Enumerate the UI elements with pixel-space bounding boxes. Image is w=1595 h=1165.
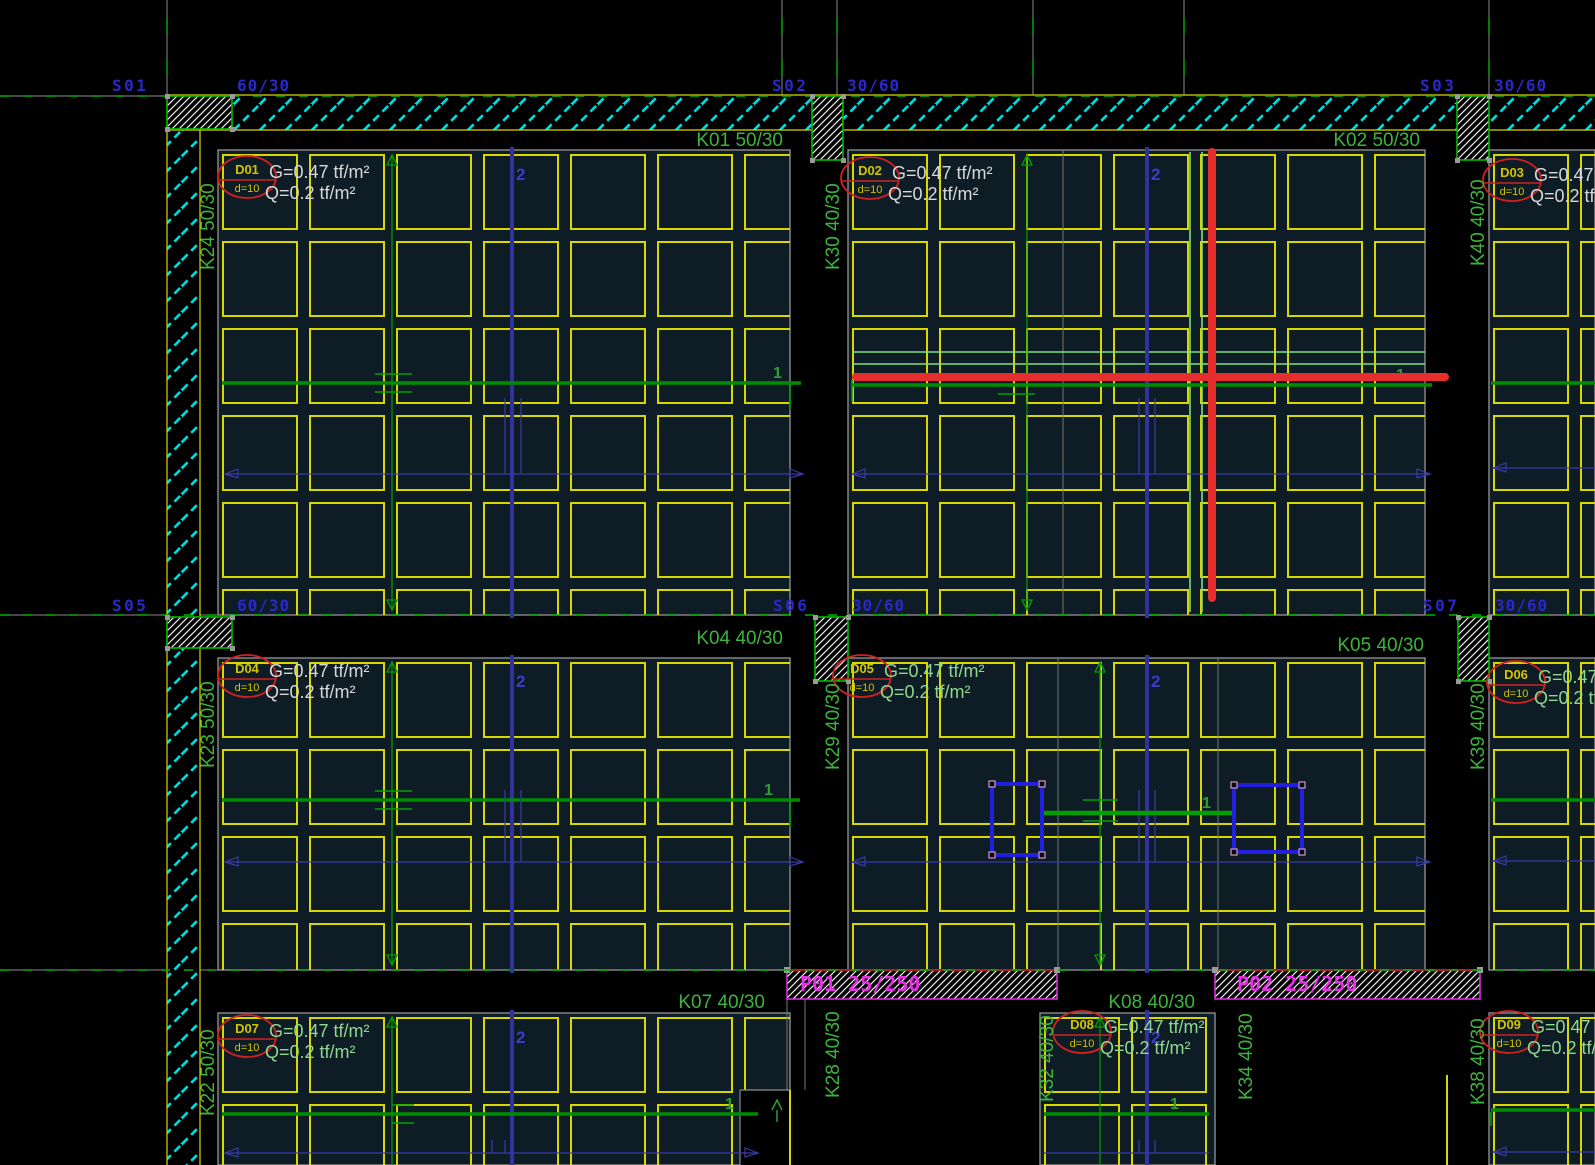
beam-label-K30[interactable]: K30 40/30 (823, 183, 844, 270)
slab-id-label: D09 (1497, 1017, 1521, 1032)
beam-label-K22[interactable]: K22 50/30 (198, 1029, 219, 1116)
slab-thickness-label: d=10 (1504, 688, 1529, 700)
slab-dead-load: G=0.47 tf/m² (1534, 165, 1595, 185)
slab-dead-load: G=0.47 tf/m² (1104, 1017, 1205, 1037)
slab-live-load: Q=0.2 tf/m² (888, 184, 979, 204)
slab-live-load: Q=0.2 tf/m² (1530, 186, 1595, 206)
shear-wall-label: P01 25/250 (800, 972, 920, 996)
column-corner-grip (1455, 158, 1460, 163)
slab-live-load: Q=0.2 tf/m² (1527, 1038, 1595, 1058)
slab-thickness-label: d=10 (1497, 1038, 1522, 1050)
column-corner-grip (813, 615, 818, 620)
slab-dead-load: G=0.47 tf/m² (1531, 1017, 1595, 1037)
selection-grip[interactable] (1231, 849, 1237, 855)
strip-label-1: 1 (773, 365, 782, 382)
column-size-label[interactable]: 30/60 (1494, 76, 1547, 95)
column-corner-grip (165, 615, 170, 620)
slab-live-load: Q=0.2 tf/m² (265, 1042, 356, 1062)
slab-live-load: Q=0.2 tf/m² (880, 682, 971, 702)
beam-label-K29[interactable]: K29 40/30 (823, 683, 844, 770)
column-name-label[interactable]: S07 (1423, 596, 1459, 615)
column-corner-grip (165, 94, 170, 99)
slab-dead-load: G=0.47 tf/m² (1538, 667, 1595, 687)
slab-dead-load: G=0.47 tf/m² (269, 1021, 370, 1041)
column-corner-grip (165, 646, 170, 651)
column-size-label[interactable]: 30/60 (852, 596, 905, 615)
slab-id-label: D05 (850, 661, 874, 676)
column-size-label[interactable]: 60/30 (237, 596, 290, 615)
column-corner-grip (810, 94, 815, 99)
slab-notch (740, 1090, 790, 1165)
column-corner-grip (1456, 615, 1461, 620)
cad-canvas: P01 25/250P02 25/250S0160/30S0230/60S033… (0, 0, 1595, 1165)
column-size-label[interactable]: 30/60 (847, 76, 900, 95)
slab-id-label: D06 (1504, 667, 1528, 682)
column-corner-grip (813, 679, 818, 684)
slab-dead-load: G=0.47 tf/m² (269, 661, 370, 681)
strip-label-2: 2 (1151, 165, 1160, 184)
column-name-label[interactable]: S01 (112, 76, 148, 95)
column-corner-grip (230, 646, 235, 651)
column-size-label[interactable]: 30/60 (1495, 596, 1548, 615)
selection-grip[interactable] (1231, 782, 1237, 788)
slab-id-label: D02 (858, 163, 882, 178)
beam-label-K28[interactable]: K28 40/30 (823, 1011, 844, 1098)
slab-id-label: D01 (235, 162, 259, 177)
slab-thickness-label: d=10 (1070, 1038, 1095, 1050)
beam-label-K05[interactable]: K05 40/30 (1337, 635, 1424, 656)
beam-label-K38[interactable]: K38 40/30 (1468, 1018, 1489, 1105)
slab-thickness-label: d=10 (858, 184, 883, 196)
beam-label-K32[interactable]: K32 40/30 (1037, 1015, 1058, 1102)
slab-thickness-label: d=10 (850, 682, 875, 694)
slab-live-load: Q=0.2 tf/m² (1100, 1038, 1191, 1058)
selection-grip[interactable] (1299, 782, 1305, 788)
slab-thickness-label: d=10 (235, 1042, 260, 1054)
column-corner-grip (230, 94, 235, 99)
selection-grip[interactable] (1299, 849, 1305, 855)
column-name-label[interactable]: S05 (112, 596, 148, 615)
column-corner-grip (230, 615, 235, 620)
beam-label-K08[interactable]: K08 40/30 (1108, 992, 1195, 1013)
beam-label-K04[interactable]: K04 40/30 (696, 628, 783, 649)
shear-wall-label: P02 25/250 (1237, 972, 1357, 996)
strip-label-2: 2 (1151, 672, 1160, 691)
strip-label-2: 2 (516, 165, 525, 184)
column-corner-grip (841, 158, 846, 163)
beam-label-K40[interactable]: K40 40/30 (1468, 179, 1489, 266)
shear-wall-2[interactable]: P02 25/250 (1212, 967, 1483, 999)
slab-id-label: D08 (1070, 1017, 1094, 1032)
slab-thickness-label: d=10 (235, 183, 260, 195)
slab-thickness-label: d=10 (1500, 186, 1525, 198)
beam-label-K24[interactable]: K24 50/30 (198, 183, 219, 270)
slab-id-label: D07 (235, 1021, 259, 1036)
slab-id-label: D03 (1500, 165, 1524, 180)
selection-grip[interactable] (989, 781, 995, 787)
formwork-plan-drawing: P01 25/250P02 25/250S0160/30S0230/60S033… (0, 0, 1595, 1165)
wall-top[interactable] (167, 95, 1595, 130)
slab-dead-load: G=0.47 tf/m² (269, 162, 370, 182)
slab-panel-D02[interactable] (848, 150, 1425, 615)
column-name-label[interactable]: S06 (773, 596, 809, 615)
slab-dead-load: G=0.47 tf/m² (884, 661, 985, 681)
strip-label-1: 1 (1170, 1096, 1179, 1113)
strip-label-1: 1 (725, 1096, 734, 1113)
slab-live-load: Q=0.2 tf/m² (265, 682, 356, 702)
column-S05[interactable]: S0560/30 (112, 596, 290, 651)
slab-thickness-label: d=10 (235, 682, 260, 694)
strip-label-1: 1 (1202, 795, 1211, 812)
selection-grip[interactable] (1039, 781, 1045, 787)
slab-live-load: Q=0.2 tf/m² (1534, 688, 1595, 708)
shear-wall-1[interactable]: P01 25/250 (784, 967, 1060, 999)
slab-tag-D06[interactable]: D06d=10G=0.47 tf/m²Q=0.2 tf/m² (1487, 661, 1595, 708)
column-corner-grip (230, 127, 235, 132)
beam-label-K23[interactable]: K23 50/30 (198, 681, 219, 768)
slab-tag-D09[interactable]: D09d=10G=0.47 tf/m²Q=0.2 tf/m² (1480, 1011, 1595, 1058)
column-name-label[interactable]: S03 (1420, 76, 1456, 95)
strip-label-2: 2 (516, 1028, 525, 1047)
column-corner-grip (1487, 158, 1492, 163)
column-corner-grip (841, 94, 846, 99)
column-corner-grip (165, 127, 170, 132)
beam-label-K34[interactable]: K34 40/30 (1236, 1013, 1257, 1100)
beam-label-K02[interactable]: K02 50/30 (1333, 130, 1420, 151)
selection-grip[interactable] (1039, 852, 1045, 858)
column-corner-grip (810, 158, 815, 163)
column-corner-grip (1456, 679, 1461, 684)
column-corner-grip (846, 615, 851, 620)
slab-tag-D03[interactable]: D03d=10G=0.47 tf/m²Q=0.2 tf/m² (1483, 159, 1595, 206)
selection-grip[interactable] (989, 852, 995, 858)
slab-live-load: Q=0.2 tf/m² (265, 183, 356, 203)
beam-label-K01[interactable]: K01 50/30 (696, 130, 783, 151)
beam-label-K39[interactable]: K39 40/30 (1468, 683, 1489, 770)
column-name-label[interactable]: S02 (772, 76, 808, 95)
slab-id-label: D04 (235, 661, 260, 676)
beam-label-K07[interactable]: K07 40/30 (678, 992, 765, 1013)
strip-label-1: 1 (764, 782, 773, 799)
strip-label-2: 2 (516, 672, 525, 691)
column-corner-grip (1487, 94, 1492, 99)
slab-dead-load: G=0.47 tf/m² (892, 163, 993, 183)
column-size-label[interactable]: 60/30 (237, 76, 290, 95)
column-corner-grip (1487, 615, 1492, 620)
